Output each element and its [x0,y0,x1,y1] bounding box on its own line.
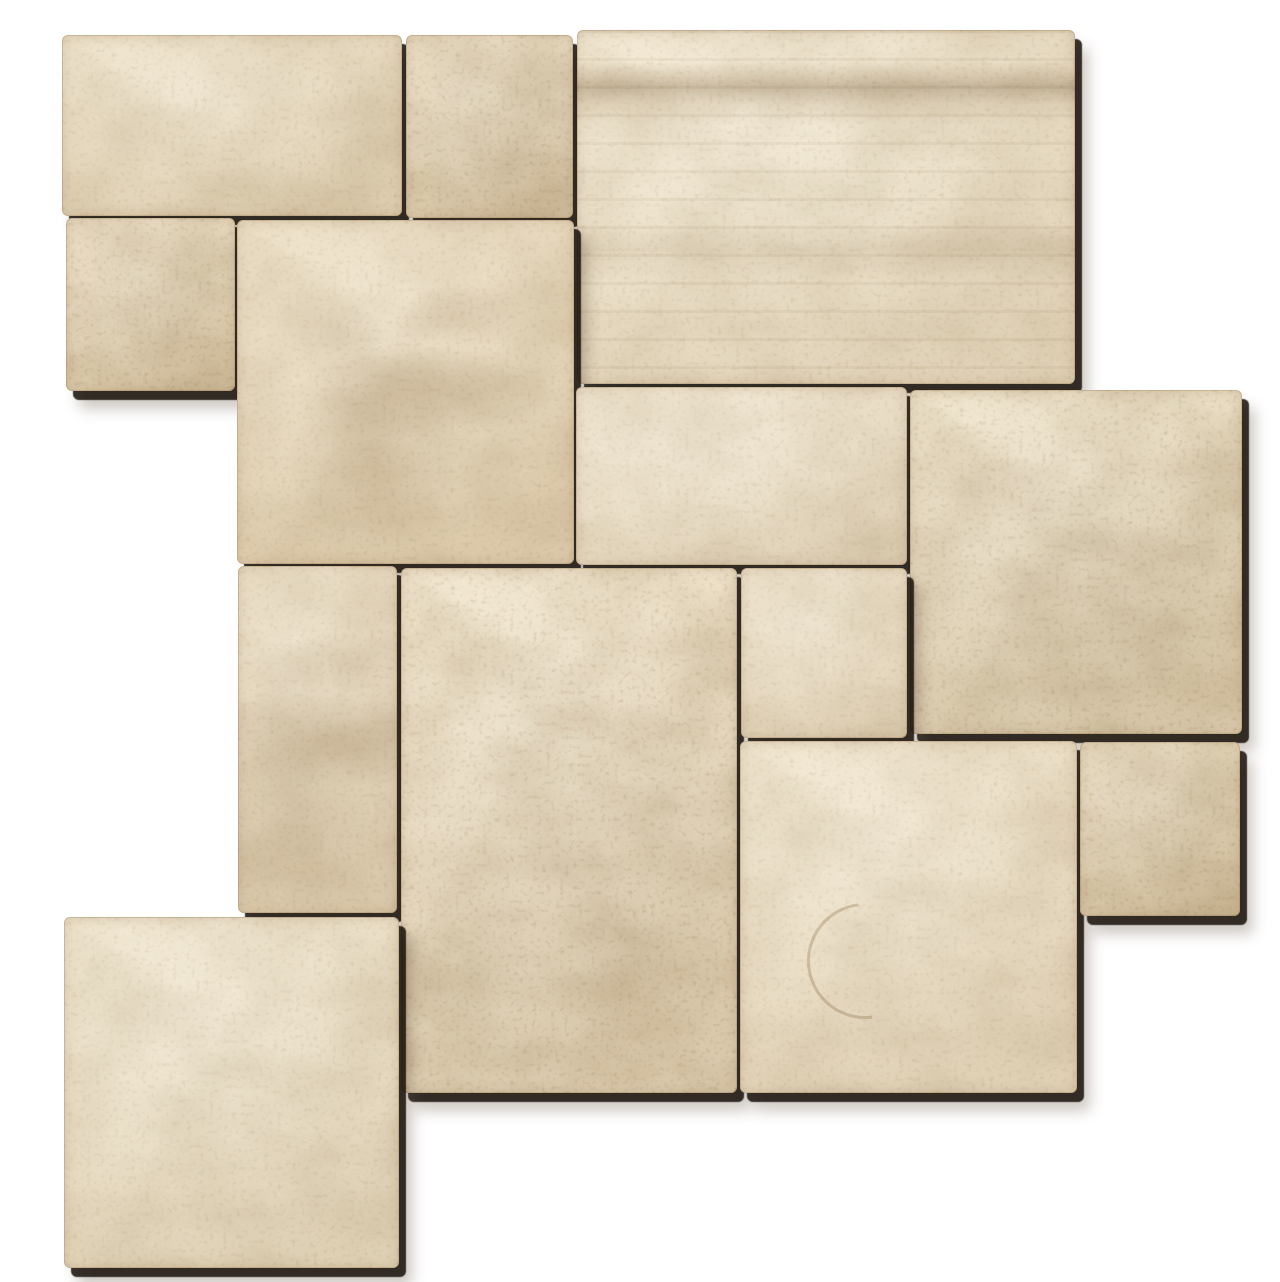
travertine-tile-square-8x8-left [66,218,235,391]
stone-grain-overlay [238,566,397,913]
travertine-tile-square-8x8-top [406,35,573,218]
travertine-tile-square-8x8-right [1080,742,1240,916]
travertine-versailles-mosaic [0,0,1280,1282]
travertine-tile-rect-16x8-top-left [62,35,402,216]
stone-grain-overlay [576,387,907,565]
stone-grain-overlay [401,568,737,1093]
travertine-tile-square-16x16-bottom-left [64,917,399,1268]
stone-grain-overlay [910,390,1242,734]
stone-grain-overlay [64,917,399,1268]
stone-grain-overlay [1080,742,1240,916]
travertine-tile-square-8x8-center [741,568,907,738]
stone-grain-overlay [66,218,235,391]
travertine-tile-rect-24x16-top-right [577,30,1075,384]
travertine-tile-square-16x16-upper-middle [237,220,574,564]
travertine-tile-square-16x16-bottom-right [740,741,1077,1093]
travertine-tile-square-16x16-middle-right [910,390,1242,734]
stone-grain-overlay [237,220,574,564]
stone-grain-overlay [577,30,1075,384]
travertine-tile-rect-16x24-center [401,568,737,1093]
stone-grain-overlay [62,35,402,216]
stone-grain-overlay [741,568,907,738]
travertine-tile-rect-16x8-middle [576,387,907,565]
stone-grain-overlay [406,35,573,218]
stone-grain-overlay [740,741,1077,1093]
travertine-tile-rect-8x16-middle-left [238,566,397,913]
